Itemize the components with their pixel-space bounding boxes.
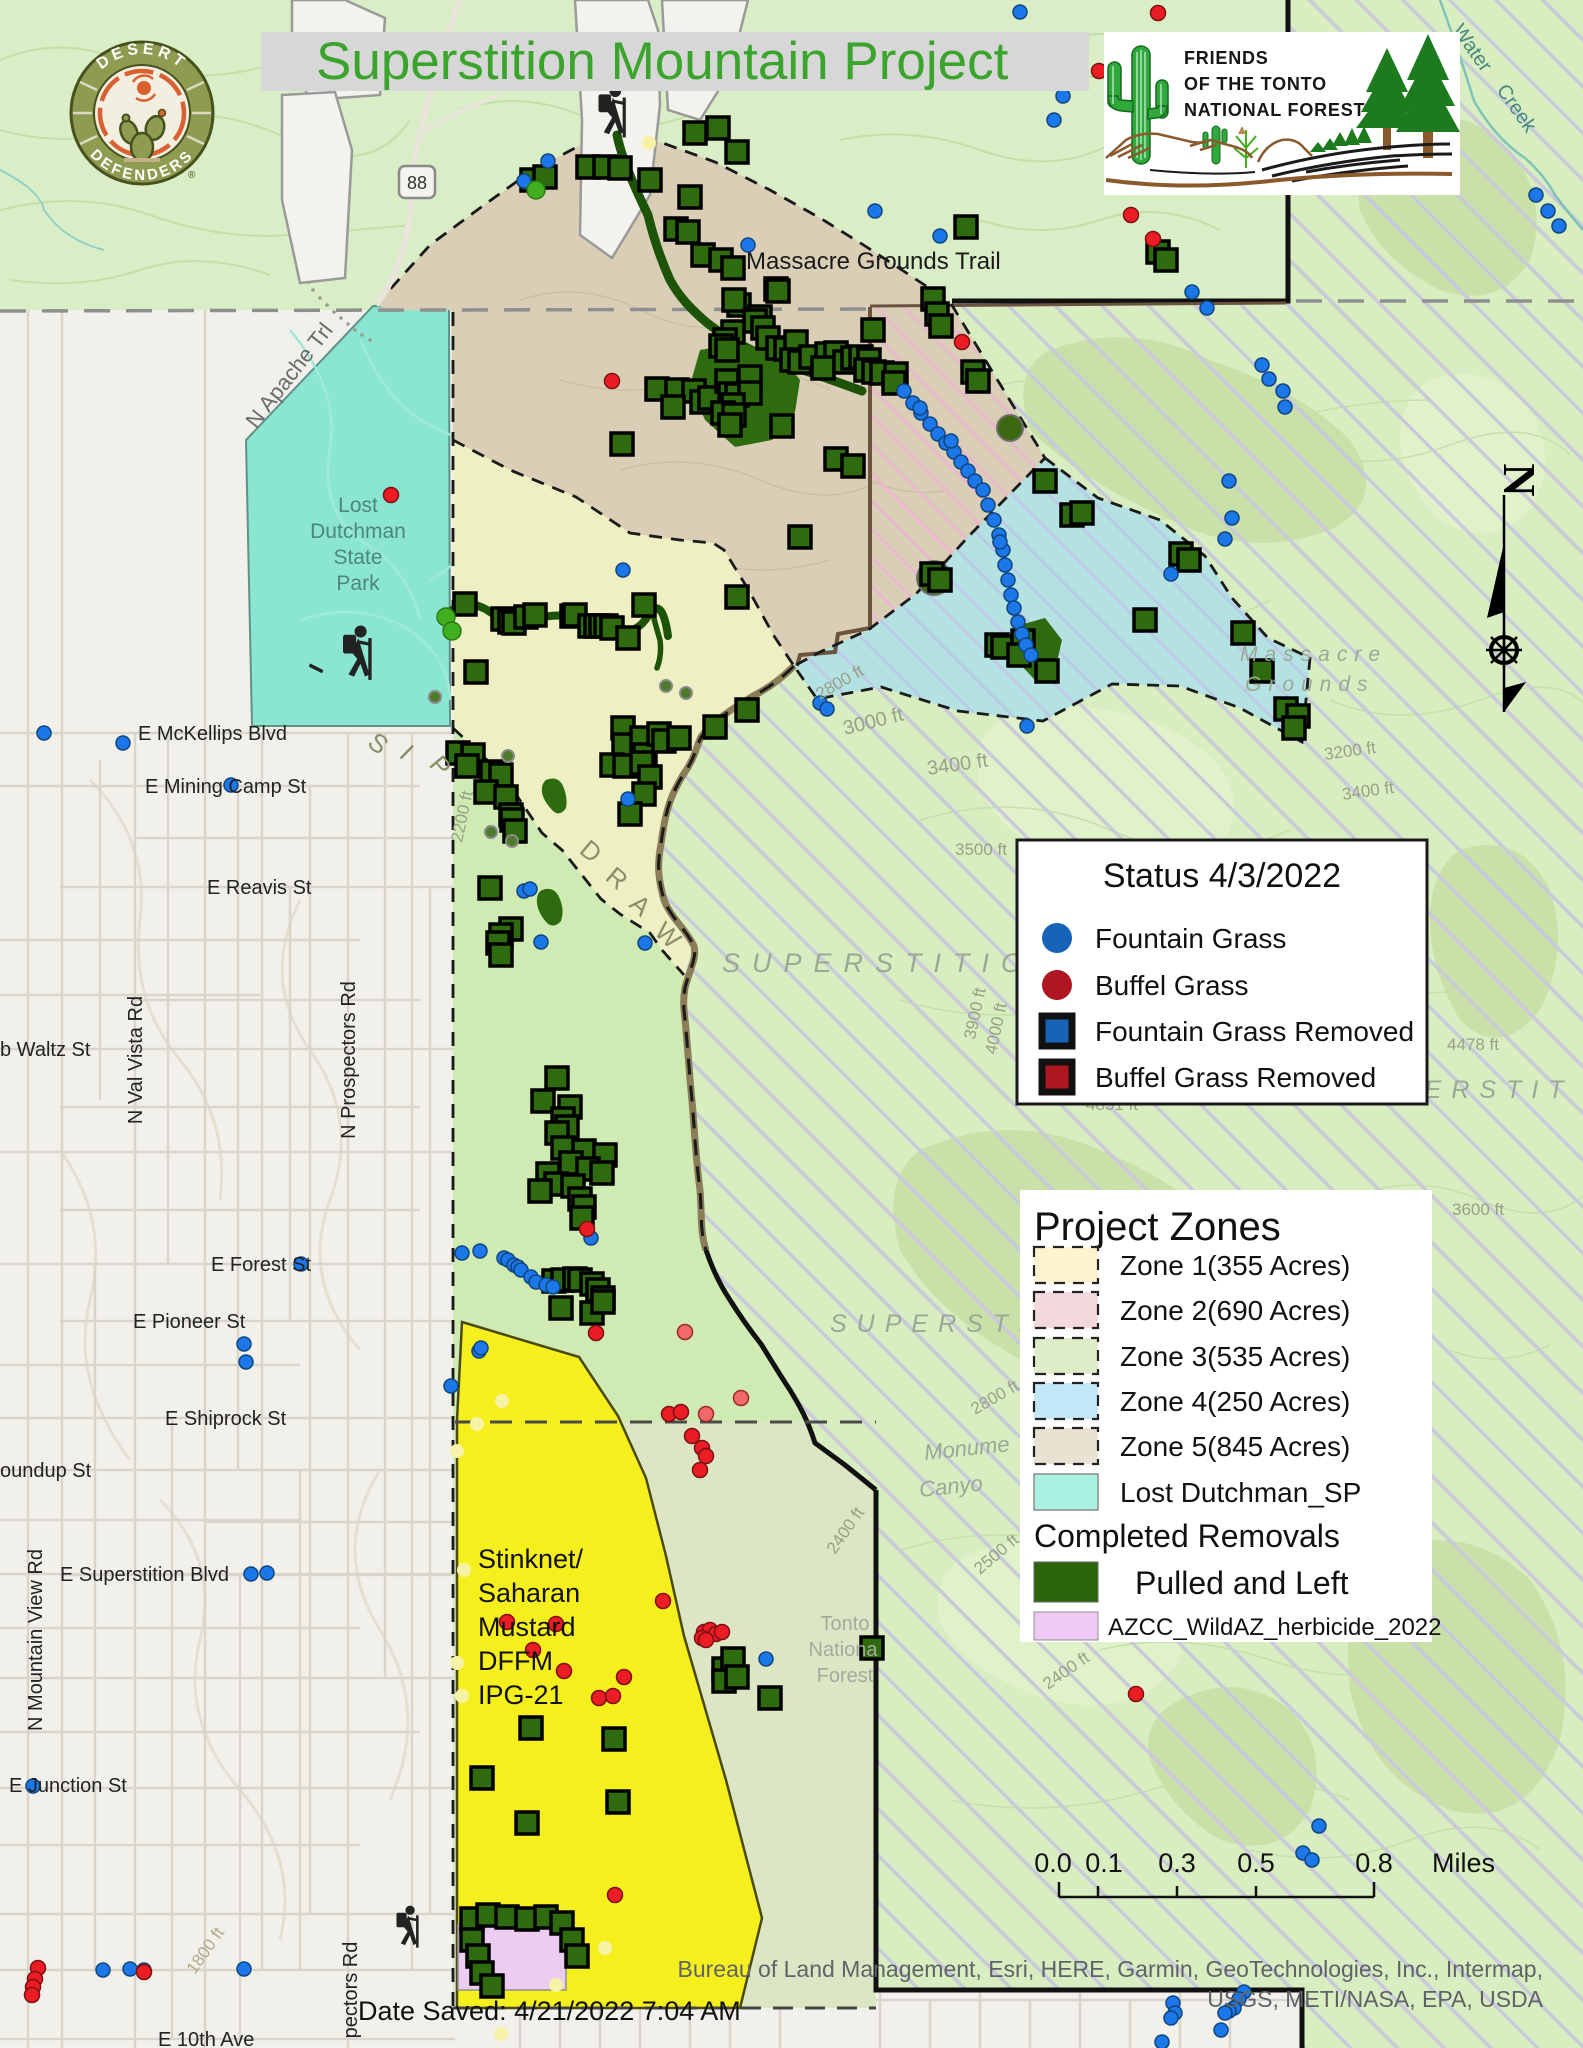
svg-text:E Pioneer St: E Pioneer St xyxy=(133,1311,246,1333)
svg-text:Grounds: Grounds xyxy=(1245,673,1375,696)
svg-text:Zone 2(690 Acres): Zone 2(690 Acres) xyxy=(1120,1295,1350,1326)
svg-text:4478 ft: 4478 ft xyxy=(1447,1035,1499,1054)
svg-text:Zone 3(535 Acres): Zone 3(535 Acres) xyxy=(1120,1341,1350,1372)
svg-text:Fountain Grass: Fountain Grass xyxy=(1095,923,1286,954)
svg-text:Massacre Grounds Trail: Massacre Grounds Trail xyxy=(746,248,1001,275)
svg-text:0.8: 0.8 xyxy=(1355,1848,1393,1878)
svg-text:IPG-21: IPG-21 xyxy=(478,1680,564,1710)
svg-text:oundup St: oundup St xyxy=(0,1460,92,1482)
svg-text:Pulled and Left: Pulled and Left xyxy=(1135,1565,1349,1601)
svg-text:0.0: 0.0 xyxy=(1034,1848,1072,1878)
svg-text:USGS, METI/NASA, EPA, USDA: USGS, METI/NASA, EPA, USDA xyxy=(1207,1986,1543,2012)
svg-text:N Mountain View Rd: N Mountain View Rd xyxy=(25,1549,47,1731)
svg-text:FRIENDS: FRIENDS xyxy=(1184,48,1269,68)
svg-text:3600 ft: 3600 ft xyxy=(1452,1200,1504,1219)
svg-text:88: 88 xyxy=(407,173,427,193)
svg-text:Date Saved: 4/21/2022 7:04 AM: Date Saved: 4/21/2022 7:04 AM xyxy=(358,1996,741,2026)
svg-text:0.5: 0.5 xyxy=(1237,1848,1275,1878)
svg-text:Tonto: Tonto xyxy=(821,1613,870,1635)
svg-text:Forest: Forest xyxy=(817,1665,874,1687)
svg-text:N: N xyxy=(1494,463,1545,496)
svg-text:E Mining Camp St: E Mining Camp St xyxy=(145,776,307,798)
svg-text:Saharan: Saharan xyxy=(478,1578,580,1608)
svg-text:b Waltz St: b Waltz St xyxy=(0,1039,91,1061)
svg-text:E 10th Ave: E 10th Ave xyxy=(158,2029,254,2048)
svg-text:Bureau of Land Management, Esr: Bureau of Land Management, Esri, HERE, G… xyxy=(678,1956,1544,1982)
svg-text:Project Zones: Project Zones xyxy=(1034,1205,1281,1249)
svg-text:N Prospectors Rd: N Prospectors Rd xyxy=(338,981,360,1139)
svg-text:®: ® xyxy=(188,170,196,181)
svg-text:Buffel Grass: Buffel Grass xyxy=(1095,970,1249,1001)
svg-text:Lost: Lost xyxy=(338,494,378,517)
svg-text:Miles: Miles xyxy=(1432,1848,1495,1878)
svg-text:Status 4/3/2022: Status 4/3/2022 xyxy=(1103,857,1341,895)
svg-text:Nationa: Nationa xyxy=(809,1639,879,1661)
svg-text:Superstition Mountain Project: Superstition Mountain Project xyxy=(316,32,1009,91)
svg-text:Park: Park xyxy=(336,572,380,595)
svg-text:0.3: 0.3 xyxy=(1158,1848,1196,1878)
svg-text:E McKellips Blvd: E McKellips Blvd xyxy=(138,723,287,745)
svg-text:Buffel Grass Removed: Buffel Grass Removed xyxy=(1095,1062,1376,1093)
svg-text:3500 ft: 3500 ft xyxy=(955,840,1007,859)
svg-text:Dutchman: Dutchman xyxy=(310,520,406,543)
svg-text:DFFM: DFFM xyxy=(478,1646,553,1676)
svg-text:E Shiprock St: E Shiprock St xyxy=(165,1408,287,1430)
svg-text:Zone 1(355 Acres): Zone 1(355 Acres) xyxy=(1120,1250,1350,1281)
svg-text:Fountain Grass Removed: Fountain Grass Removed xyxy=(1095,1016,1414,1047)
svg-text:State: State xyxy=(333,546,382,569)
svg-text:E Superstition Blvd: E Superstition Blvd xyxy=(60,1564,229,1586)
svg-text:Stinknet/: Stinknet/ xyxy=(478,1544,584,1574)
svg-text:AZCC_WildAZ_herbicide_2022: AZCC_WildAZ_herbicide_2022 xyxy=(1108,1614,1442,1641)
svg-text:0.1: 0.1 xyxy=(1085,1848,1123,1878)
svg-text:Massacre: Massacre xyxy=(1240,643,1387,666)
svg-text:NATIONAL FOREST: NATIONAL FOREST xyxy=(1184,100,1365,120)
svg-text:Mustard: Mustard xyxy=(478,1612,576,1642)
svg-text:Zone 5(845 Acres): Zone 5(845 Acres) xyxy=(1120,1431,1350,1462)
svg-text:OF THE TONTO: OF THE TONTO xyxy=(1184,74,1327,94)
svg-text:N Val Vista Rd: N Val Vista Rd xyxy=(125,996,147,1124)
svg-text:Lost Dutchman_SP: Lost Dutchman_SP xyxy=(1120,1477,1361,1508)
svg-text:E Reavis St: E Reavis St xyxy=(207,877,312,899)
svg-text:E Forest St: E Forest St xyxy=(211,1254,311,1276)
svg-text:Completed Removals: Completed Removals xyxy=(1034,1518,1340,1554)
svg-text:E Junction St: E Junction St xyxy=(9,1775,127,1797)
svg-text:Zone 4(250 Acres): Zone 4(250 Acres) xyxy=(1120,1386,1350,1417)
